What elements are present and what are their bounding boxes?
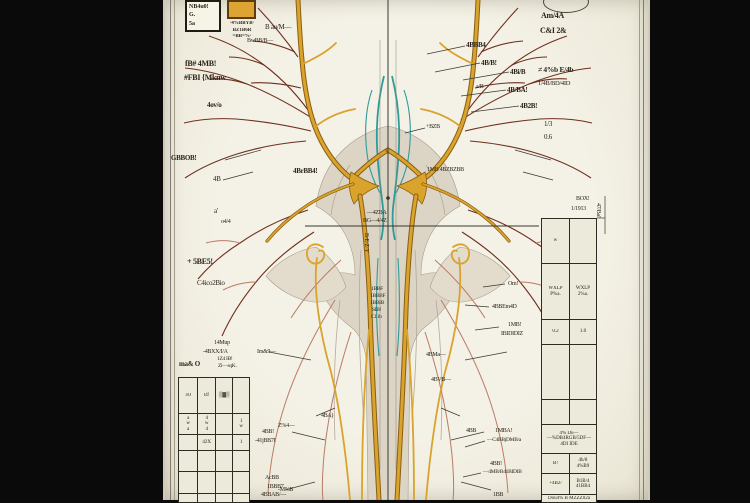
diagram-label: 4B/BA! xyxy=(507,87,527,94)
table-cell xyxy=(179,472,197,493)
table-cell xyxy=(215,414,233,434)
table-row xyxy=(542,399,596,424)
diagram-label: 4BB! xyxy=(490,461,502,467)
table-cell xyxy=(232,494,249,502)
diagram-label: 4B xyxy=(213,176,221,183)
table-row: Dou4% B MZZZ02a xyxy=(542,494,596,502)
diagram-label: 1MB! xyxy=(508,322,521,328)
table-cell: 1 xyxy=(232,435,249,450)
table-row: 42X1 xyxy=(179,434,249,450)
table-cell xyxy=(197,472,215,493)
diagram-label: 4BB! xyxy=(262,429,274,435)
table-row: 3Ot4!▒▓▒ xyxy=(179,378,249,413)
table-cell xyxy=(197,494,215,502)
diagram-label: 1Z4 IB! xyxy=(217,357,232,363)
diagram-label: + 5BE5! xyxy=(187,258,213,266)
screenshot-root: NB4u0! G. 5a ·4%BBYB· BZ1B6R =BB=%· B au… xyxy=(0,0,750,500)
table-cell xyxy=(542,400,569,424)
table-cell: 4 w 4 xyxy=(197,414,215,434)
diagram-label: BwBB/B— xyxy=(247,38,273,44)
diagram-label: 4ov/o xyxy=(207,102,221,109)
table-row xyxy=(542,344,596,399)
table-cell: B1B/4 41BB4 xyxy=(569,474,596,494)
table-cell xyxy=(569,219,596,263)
table-row: a w a4 w 41 w xyxy=(179,413,249,434)
diagram-label: Am/4A xyxy=(541,12,564,20)
diagram-label: 4BMa— xyxy=(426,352,446,358)
diagram-label: SIB! xyxy=(372,308,381,314)
diagram-label: C&I 2& xyxy=(540,27,566,35)
table-cell xyxy=(569,400,596,424)
table-cell xyxy=(179,435,197,450)
right-table: wWXLP P%a.WXLP 2%a.0.21.04% Du— —%DB4RGB… xyxy=(541,218,597,503)
table-cell xyxy=(569,345,596,399)
diagram-label: BOX! xyxy=(576,196,589,202)
diagram-label: 1/3 xyxy=(544,121,552,128)
diagram-label: IBIDIDIZ xyxy=(501,331,523,337)
table-row: 0.21.0 xyxy=(542,319,596,344)
diagram-label: AcBB xyxy=(265,475,279,481)
table-cell: Dou4% B MZZZ02a xyxy=(542,495,596,502)
diagram-label: o4/4 xyxy=(221,219,230,225)
table-row: B!4h/8 4%B9 xyxy=(542,453,596,473)
diagram-label: —4ZBA xyxy=(367,210,387,216)
table-cell: WXLP P%a. xyxy=(542,264,569,319)
table-cell: WXLP 2%a. xyxy=(569,264,596,319)
diagram-label: Z%4— xyxy=(278,423,294,429)
diagram-label: 1BBF xyxy=(371,287,383,293)
diagram-label: 4BBB4 xyxy=(466,42,486,49)
diagram-label: #FBI {Mknw xyxy=(184,74,226,82)
table-cell xyxy=(215,435,233,450)
diagram-label: GBBOB! xyxy=(171,155,196,162)
table-row xyxy=(179,493,249,502)
diagram-label: —4MB/B41BIDIB xyxy=(483,470,522,476)
table-cell: 1.0 xyxy=(569,320,596,344)
diagram-label: a/B xyxy=(476,84,483,90)
table-row xyxy=(179,450,249,471)
table-cell: 4% Du— —%DB4RGB/5DF— 4DI IDE xyxy=(542,425,596,453)
diagram-label: Om! xyxy=(508,281,518,287)
table-cell xyxy=(179,494,197,502)
table-cell xyxy=(197,451,215,471)
table-cell xyxy=(179,451,197,471)
diagram-label: ≠ 4%b E/4b xyxy=(538,66,573,74)
diagram-label: B au/M— xyxy=(265,24,291,31)
table-cell: a w a xyxy=(179,414,197,434)
table-cell xyxy=(215,451,233,471)
table-row: w xyxy=(542,219,596,263)
diagram-label: 1MB 4BZBZBB xyxy=(427,167,464,173)
table-cell xyxy=(215,494,233,502)
diagram-label: 14Mup xyxy=(214,340,230,346)
diagram-label: C4ico2Bio xyxy=(197,280,225,287)
table-cell: 3O xyxy=(179,378,197,413)
diagram-label: 1MBA! xyxy=(495,428,512,434)
diagram-label: 4BVB— xyxy=(431,377,451,383)
table-row: +4B2/B1B/4 41BB4 xyxy=(542,473,596,494)
diagram-label: fB# 4MB! xyxy=(185,60,216,68)
bottom-left-table: 3Ot4!▒▓▒a w a4 w 41 w42X1 xyxy=(178,377,250,503)
diagram-label: 4B/B! xyxy=(481,60,497,67)
table-cell: B! xyxy=(542,454,569,473)
diagram-label: +BZB xyxy=(426,124,440,130)
diagram-label: B·E·Z·Y xyxy=(363,233,369,253)
table-cell: 4h/8 4%B9 xyxy=(569,454,596,473)
table-cell: t4! xyxy=(197,378,215,413)
diagram-label: Im&9— xyxy=(257,349,276,355)
diagram-label: 4BB xyxy=(466,428,476,434)
diagram-label: 1/4B/BD/4ID xyxy=(538,81,570,88)
diagram-label: 4Bi/B xyxy=(510,69,525,76)
diagram-label: -4BXX/I/A xyxy=(203,349,228,355)
table-row xyxy=(179,471,249,493)
table-cell xyxy=(232,378,249,413)
table-row: 4% Du— —%DB4RGB/5DF— 4DI IDE xyxy=(542,424,596,453)
diagram-label: 4BrBB4! xyxy=(293,168,317,175)
table-cell: 0.2 xyxy=(542,320,569,344)
diagram-label: ma& O xyxy=(179,361,200,368)
table-cell: 42X xyxy=(197,435,215,450)
table-row: WXLP P%a.WXLP 2%a. xyxy=(542,263,596,319)
table-cell: +4B2/ xyxy=(542,474,569,494)
diagram-label: 1BB xyxy=(493,492,503,498)
anatomy-poster: NB4u0! G. 5a ·4%BBYB· BZ1B6R =BB=%· B au… xyxy=(165,0,648,500)
diagram-label: 0.6 xyxy=(544,134,552,141)
table-cell: w xyxy=(542,219,569,263)
diagram-label: 1/1913 xyxy=(571,206,586,212)
diagram-label: BG—4/4Z xyxy=(363,218,387,224)
diagram-label: 4BA) xyxy=(321,413,333,419)
diagram-label: Zi—sqK. xyxy=(218,364,237,370)
table-cell: ▒▓▒ xyxy=(215,378,233,413)
diagram-label: 47/Ba! xyxy=(595,203,601,218)
diagram-label: -M%B xyxy=(278,487,293,493)
diagram-label: 1BBBF xyxy=(370,294,385,300)
table-cell: 1 w xyxy=(232,414,249,434)
table-cell xyxy=(542,345,569,399)
table-cell xyxy=(215,472,233,493)
diagram-label: 4BBEm4D xyxy=(492,304,517,310)
diagram-label: -41jBB7I xyxy=(255,438,275,444)
diagram-label: C1 ib xyxy=(371,315,382,321)
diagram-label: a' xyxy=(214,208,218,215)
diagram-label: 4B2B! xyxy=(520,103,537,110)
table-cell xyxy=(232,472,249,493)
diagram-label: 1BBIB xyxy=(370,301,384,307)
table-cell xyxy=(232,451,249,471)
diagram-label: —C4BBjDMB/a xyxy=(487,438,521,444)
